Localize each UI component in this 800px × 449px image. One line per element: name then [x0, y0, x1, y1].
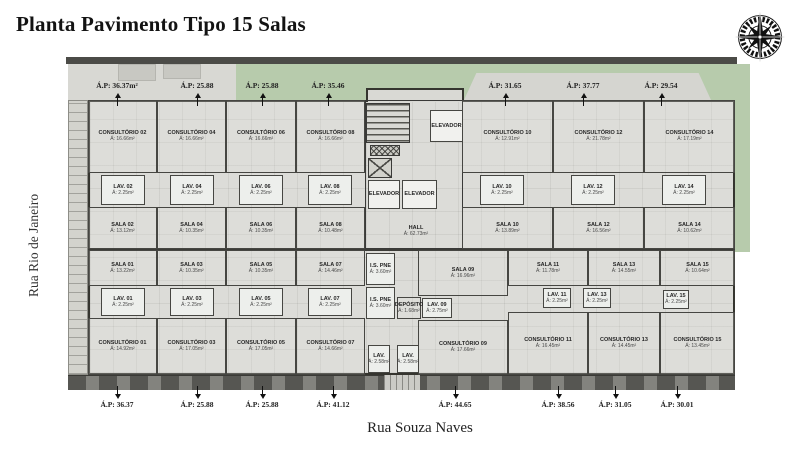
room-name: LAV. 09: [427, 302, 446, 308]
room-sala-11: SALA 11Á: 11.78m²: [508, 250, 588, 286]
room-lav-09: LAV. 09Á: 2.75m²: [422, 298, 452, 318]
room-area: Á: 3.60m²: [370, 270, 392, 276]
room-consultorio-14: CONSULTÓRIO 14Á: 17.19m²: [644, 100, 735, 173]
room-sala-08: SALA 08Á: 10.48m²: [296, 207, 365, 249]
room-name: LAV. 14: [674, 184, 693, 190]
leader-arrow-icon: [262, 386, 263, 397]
room-sala-14: SALA 14Á: 10.62m²: [644, 207, 735, 249]
room-lav-12: LAV. 12Á: 2.25m²: [571, 175, 615, 205]
room-name: LAV. 12: [583, 184, 602, 190]
room-area: Á: 17.05m²: [179, 347, 203, 353]
room-area: Á: 14.66m²: [318, 347, 342, 353]
room-lav-c1: LAV.Á: 2.58m²: [368, 345, 390, 373]
room-name: SALA 13: [613, 262, 635, 268]
room-name: ELEVADOR: [369, 191, 399, 197]
room-area: Á: 14.46m²: [318, 269, 342, 275]
room-consultorio-04: CONSULTÓRIO 04Á: 16.66m²: [157, 100, 226, 173]
room-name: I.S. PNE: [370, 297, 391, 303]
room-name: SALA 09: [452, 267, 474, 273]
room-area: Á: 2.25m²: [491, 191, 513, 197]
room-area: Á: 2.25m²: [250, 303, 272, 309]
room-area: Á: 21.78m²: [586, 137, 610, 143]
room-lav-03: LAV. 03Á: 2.25m²: [170, 288, 214, 316]
room-lav-01: LAV. 01Á: 2.25m²: [101, 288, 145, 316]
room-consultorio-13: CONSULTÓRIO 13Á: 14.45m²: [588, 312, 660, 375]
room-name: SALA 04: [180, 222, 202, 228]
leader-arrow-icon: [333, 386, 334, 397]
room-name: LAV. 02: [113, 184, 132, 190]
room-name: SALA 07: [319, 262, 341, 268]
room-area: Á: 14.92m²: [110, 347, 134, 353]
room-consultorio-01: CONSULTÓRIO 01Á: 14.92m²: [88, 318, 157, 375]
room-lav-07: LAV. 07Á: 2.25m²: [308, 288, 352, 316]
room-area: Á: 10.64m²: [685, 269, 709, 275]
room-area: Á: 10.48m²: [318, 229, 342, 235]
room-sala-02: SALA 02Á: 13.12m²: [88, 207, 157, 249]
room-name: ELEVADOR: [431, 123, 461, 129]
room-area: Á: 17.66m²: [451, 348, 475, 354]
room-is-pne-2: I.S. PNEÁ: 3.60m²: [366, 287, 395, 319]
room-consultorio-10: CONSULTÓRIO 10Á: 12.91m²: [462, 100, 553, 173]
room-name: ELEVADOR: [404, 191, 434, 197]
room-area: Á: 2.58m²: [397, 360, 419, 366]
room-area: Á: 10.35m²: [179, 269, 203, 275]
room-name: LAV. 03: [182, 296, 201, 302]
ap-measurement-label: Á.P: 29.54: [644, 81, 677, 90]
room-name: LAV. 13: [587, 292, 606, 298]
room-name: LAV.: [373, 353, 385, 359]
room-consultorio-05: CONSULTÓRIO 05Á: 17.05m²: [226, 318, 296, 375]
leader-arrow-icon: [197, 95, 198, 106]
room-lav-05: LAV. 05Á: 2.25m²: [239, 288, 283, 316]
room-area: Á: 2.25m²: [181, 191, 203, 197]
room-name: SALA 06: [250, 222, 272, 228]
leader-arrow-icon: [328, 95, 329, 106]
room-area: Á: 16.66m²: [110, 137, 134, 143]
room-lav-08: LAV. 08Á: 2.25m²: [308, 175, 352, 205]
room-area: Á: 17.19m²: [677, 137, 701, 143]
room-area: Á: 17.05m²: [249, 347, 273, 353]
leader-arrow-icon: [505, 95, 506, 106]
room-consultorio-11: CONSULTÓRIO 11Á: 16.45m²: [508, 312, 588, 375]
room-name: DEPÓSITO: [395, 302, 423, 308]
room-name: LAV. 11: [548, 292, 567, 298]
room-consultorio-08: CONSULTÓRIO 08Á: 16.66m²: [296, 100, 365, 173]
room-area: Á: 2.25m²: [586, 299, 608, 305]
leader-arrow-icon: [262, 95, 263, 106]
leader-arrow-icon: [455, 386, 456, 397]
room-area: Á: 16.66m²: [318, 137, 342, 143]
room-name: LAV.: [402, 353, 414, 359]
lawn-right: [733, 64, 750, 252]
room-name: LAV. 05: [251, 296, 270, 302]
leader-arrow-icon: [583, 95, 584, 106]
ap-measurement-label: Á.P: 25.88: [180, 81, 213, 90]
room-consultorio-09: CONSULTÓRIO 09Á: 17.66m²: [418, 320, 508, 375]
room-area: Á: 16.66m²: [249, 137, 273, 143]
room-consultorio-06: CONSULTÓRIO 06Á: 16.66m²: [226, 100, 296, 173]
room-area: Á: 12.91m²: [495, 137, 519, 143]
room-lav-c2: LAV.Á: 2.58m²: [397, 345, 419, 373]
room-area: Á: 2.25m²: [673, 191, 695, 197]
room-area: Á: 2.25m²: [181, 303, 203, 309]
leader-arrow-icon: [117, 95, 118, 106]
room-sala-07: SALA 07Á: 14.46m²: [296, 250, 365, 286]
room-name: SALA 10: [496, 222, 518, 228]
rear-wall-bar: [66, 57, 737, 64]
room-area: Á: 10.62m²: [677, 229, 701, 235]
room-name: SALA 01: [111, 262, 133, 268]
leader-arrow-icon: [117, 386, 118, 397]
leader-arrow-icon: [558, 386, 559, 397]
room-name: I.S. PNE: [370, 263, 391, 269]
room-consultorio-07: CONSULTÓRIO 07Á: 14.66m²: [296, 318, 365, 375]
room-name: SALA 14: [678, 222, 700, 228]
room-consultorio-03: CONSULTÓRIO 03Á: 17.05m²: [157, 318, 226, 375]
planter: [163, 64, 201, 79]
room-name: SALA 02: [111, 222, 133, 228]
room-area: Á: 13.89m²: [495, 229, 519, 235]
room-name: SALA 05: [250, 262, 272, 268]
room-shaft-x: [368, 158, 392, 178]
room-area: Á: 62.73m²: [404, 232, 428, 238]
room-area: Á: 10.35m²: [249, 269, 273, 275]
room-sala-10: SALA 10Á: 13.89m²: [462, 207, 553, 249]
room-area: Á: 2.75m²: [426, 309, 448, 315]
room-name: SALA 11: [537, 262, 559, 268]
room-consultorio-15: CONSULTÓRIO 15Á: 13.45m²: [660, 312, 735, 375]
room-area: Á: 16.45m²: [536, 344, 560, 350]
room-lav-10: LAV. 10Á: 2.25m²: [480, 175, 524, 205]
room-name: LAV. 08: [320, 184, 339, 190]
room-area: Á: 13.45m²: [685, 344, 709, 350]
room-area: Á: 13.22m²: [110, 269, 134, 275]
room-elevador-3: ELEVADOR: [402, 180, 437, 209]
room-consultorio-12: CONSULTÓRIO 12Á: 21.78m²: [553, 100, 644, 173]
room-sala-05: SALA 05Á: 10.35m²: [226, 250, 296, 286]
room-sala-03: SALA 03Á: 10.35m²: [157, 250, 226, 286]
room-name: LAV. 10: [492, 184, 511, 190]
room-area: Á: 14.45m²: [612, 344, 636, 350]
ap-measurement-label: Á.P: 35.46: [311, 81, 344, 90]
room-sala-06: SALA 06Á: 10.35m²: [226, 207, 296, 249]
room-area: Á: 11.78m²: [536, 269, 560, 275]
room-lav-13: LAV. 13Á: 2.25m²: [583, 288, 611, 308]
room-name: SALA 03: [180, 262, 202, 268]
room-name: SALA 15: [686, 262, 708, 268]
leader-arrow-icon: [615, 386, 616, 397]
room-area: Á: 10.35m²: [179, 229, 203, 235]
room-name: SALA 08: [319, 222, 341, 228]
room-name: LAV. 01: [113, 296, 132, 302]
room-lav-14: LAV. 14Á: 2.25m²: [662, 175, 706, 205]
room-lav-11: LAV. 11Á: 2.25m²: [543, 288, 571, 308]
street-label-bottom: Rua Souza Naves: [260, 420, 580, 437]
room-name: LAV. 06: [251, 184, 270, 190]
side-wall-strip: [68, 100, 88, 375]
room-lav-06: LAV. 06Á: 2.25m²: [239, 175, 283, 205]
page: { "title": "Planta Pavimento Tipo 15 Sal…: [0, 0, 800, 449]
room-area: Á: 3.60m²: [370, 304, 392, 310]
room-elevador-2: ELEVADOR: [368, 180, 400, 209]
room-lav-04: LAV. 04Á: 2.25m²: [170, 175, 214, 205]
room-area: Á: 2.25m²: [112, 303, 134, 309]
ap-measurement-label: Á.P: 31.65: [488, 81, 521, 90]
leader-arrow-icon: [661, 95, 662, 106]
ap-measurement-label: Á.P: 25.88: [245, 81, 278, 90]
room-area: Á: 10.35m²: [249, 229, 273, 235]
room-hall: HALLÁ: 62.73m²: [388, 222, 444, 240]
ap-measurement-label: Á.P: 36.37m²: [96, 81, 138, 90]
room-is-pne-1: I.S. PNEÁ: 3.60m²: [366, 253, 395, 285]
ap-measurement-label: Á.P: 37.77: [566, 81, 599, 90]
room-area: Á: 13.12m²: [110, 229, 134, 235]
room-sala-01: SALA 01Á: 13.22m²: [88, 250, 157, 286]
street-label-left: Rua Rio de Janeiro: [26, 150, 44, 340]
room-area: Á: 2.25m²: [665, 300, 687, 306]
room-stairs: [366, 103, 410, 143]
room-lav-15: LAV. 15Á: 2.25m²: [663, 290, 689, 309]
room-consultorio-02: CONSULTÓRIO 02Á: 16.66m²: [88, 100, 157, 173]
room-sala-15: SALA 15Á: 10.64m²: [660, 250, 735, 286]
room-lav-02: LAV. 02Á: 2.25m²: [101, 175, 145, 205]
room-name: LAV. 07: [320, 296, 339, 302]
room-name: SALA 12: [587, 222, 609, 228]
entry-steps: [384, 375, 420, 390]
planter: [118, 64, 156, 81]
room-name: HALL: [409, 225, 424, 231]
room-area: Á: 2.25m²: [319, 191, 341, 197]
room-area: Á: 14.55m²: [612, 269, 636, 275]
room-shaft-hatch: [370, 145, 400, 156]
room-name: LAV. 04: [182, 184, 201, 190]
room-sala-13: SALA 13Á: 14.55m²: [588, 250, 660, 286]
room-area: Á: 2.25m²: [582, 191, 604, 197]
room-sala-04: SALA 04Á: 10.35m²: [157, 207, 226, 249]
room-sala-09: SALA 09Á: 16.96m²: [418, 250, 508, 296]
room-elevador-1: ELEVADOR: [430, 110, 463, 142]
room-area: Á: 2.25m²: [319, 303, 341, 309]
room-area: Á: 16.56m²: [586, 229, 610, 235]
leader-arrow-icon: [677, 386, 678, 397]
room-sala-12: SALA 12Á: 16.56m²: [553, 207, 644, 249]
room-deposito: DEPÓSITOÁ: 1.68m²: [397, 297, 421, 319]
page-title: Planta Pavimento Tipo 15 Salas: [16, 12, 306, 37]
leader-arrow-icon: [197, 386, 198, 397]
room-area: Á: 16.66m²: [179, 137, 203, 143]
room-area: Á: 16.96m²: [451, 274, 475, 280]
room-area: Á: 2.25m²: [250, 191, 272, 197]
room-area: Á: 2.58m²: [368, 360, 390, 366]
floor-plan: CONSULTÓRIO 02Á: 16.66m²CONSULTÓRIO 04Á:…: [66, 57, 750, 390]
room-area: Á: 1.68m²: [398, 309, 420, 315]
room-area: Á: 2.25m²: [546, 299, 568, 305]
room-area: Á: 2.25m²: [112, 191, 134, 197]
